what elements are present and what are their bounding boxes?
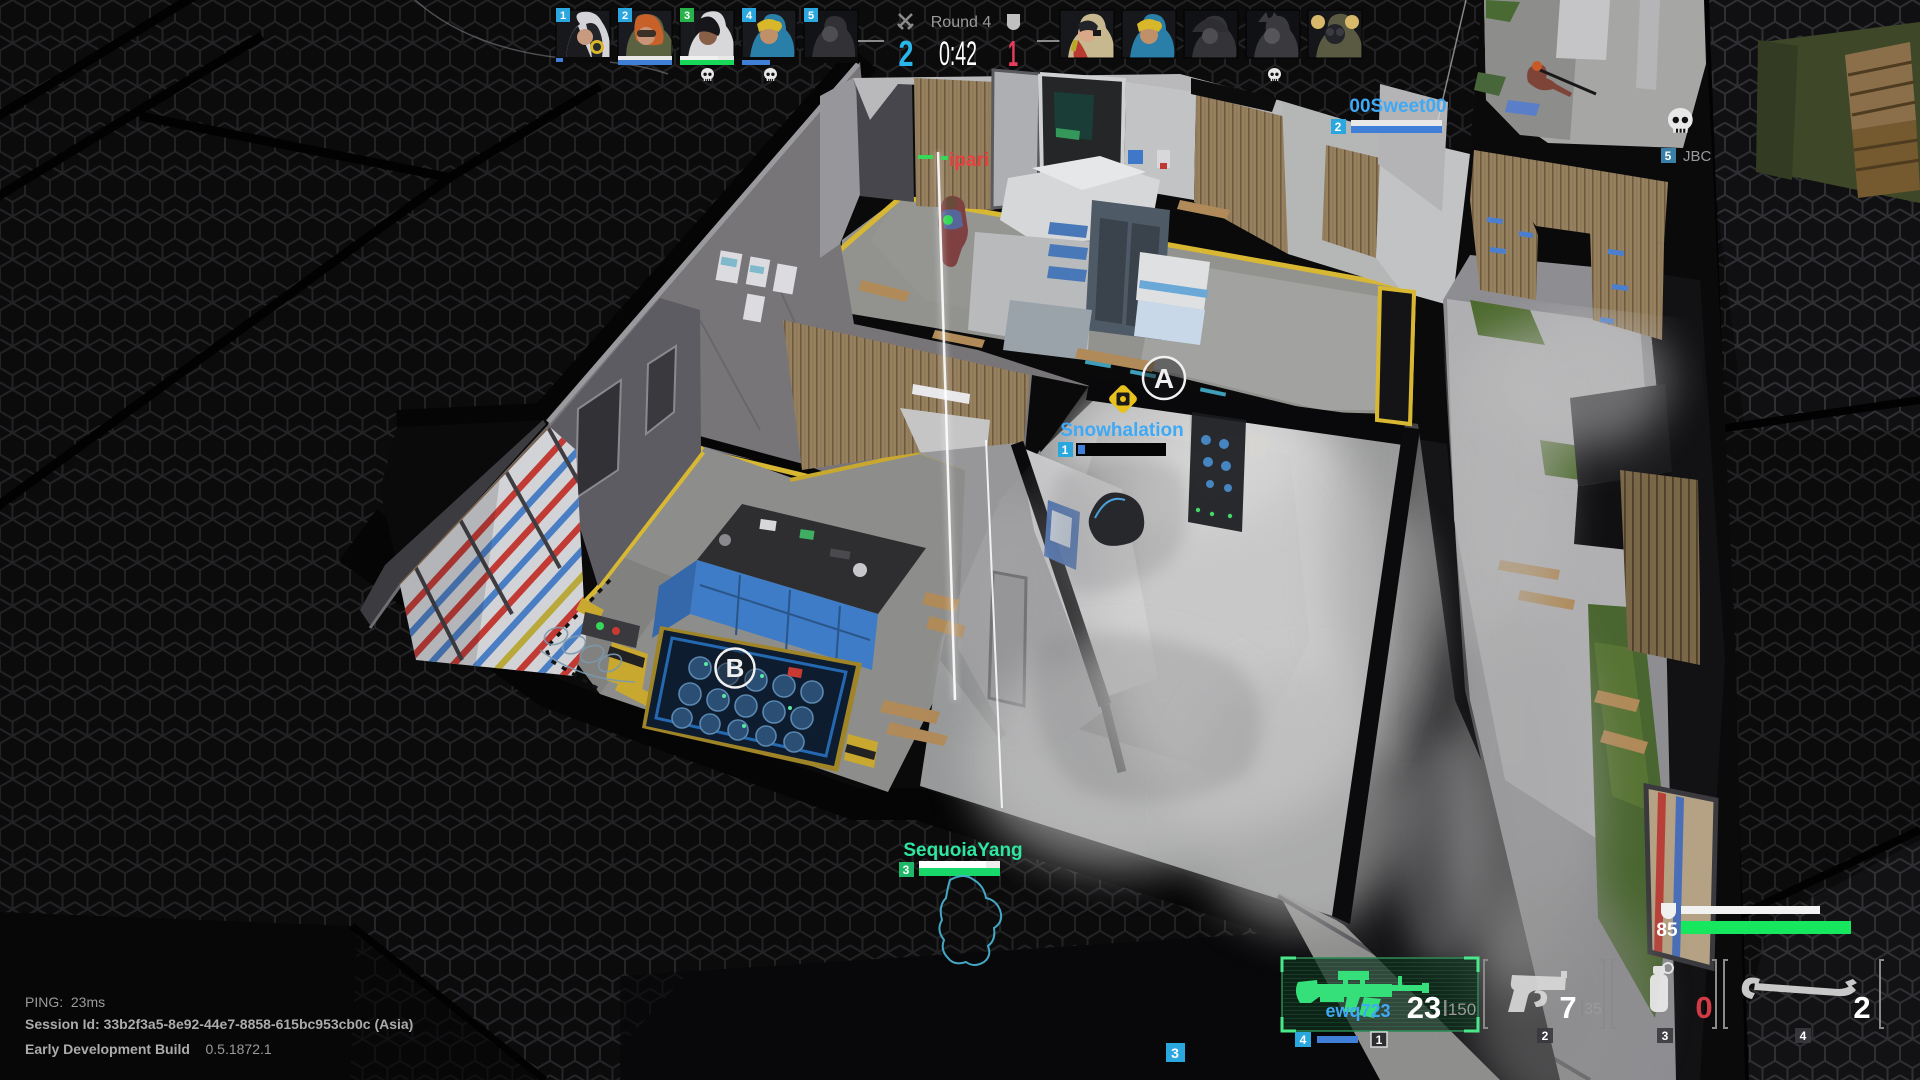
svg-text:3: 3 — [1662, 1029, 1669, 1043]
svg-text:7: 7 — [1559, 990, 1576, 1025]
svg-text:4: 4 — [1800, 1029, 1807, 1043]
svg-text:Session Id: 33b2f3a5-8e92-44e7: Session Id: 33b2f3a5-8e92-44e7-8858-615b… — [25, 1016, 413, 1032]
svg-text:2: 2 — [899, 33, 914, 74]
svg-text:1: 1 — [560, 10, 566, 22]
svg-text:0: 0 — [1695, 990, 1712, 1025]
svg-text:5: 5 — [1665, 149, 1672, 163]
svg-text:1: 1 — [1062, 443, 1069, 457]
svg-text:SequoiaYang: SequoiaYang — [903, 840, 1022, 861]
svg-text:1: 1 — [1008, 33, 1018, 74]
svg-text:150: 150 — [1448, 1000, 1476, 1019]
svg-text:ipari: ipari — [949, 150, 989, 171]
svg-text:4: 4 — [746, 10, 753, 22]
svg-text:Early Development Build 0.5: Early Development Build 0.5.1872.1 — [25, 1041, 272, 1057]
svg-text:5: 5 — [808, 10, 814, 22]
svg-text:PING: 23ms: PING: 23ms — [25, 994, 105, 1010]
svg-text:23: 23 — [1407, 990, 1441, 1025]
svg-text:2: 2 — [1542, 1029, 1549, 1043]
svg-text:00Sweet00: 00Sweet00 — [1349, 96, 1446, 117]
svg-text:0:42: 0:42 — [939, 35, 977, 73]
svg-text:3: 3 — [684, 10, 690, 22]
svg-text:Snowhalation: Snowhalation — [1060, 420, 1184, 441]
svg-text:3: 3 — [903, 863, 910, 877]
svg-text:2: 2 — [1335, 120, 1342, 134]
svg-text:1: 1 — [1376, 1033, 1383, 1047]
svg-text:Round 4: Round 4 — [931, 14, 992, 31]
svg-text:2: 2 — [1853, 990, 1870, 1025]
svg-text:ewq723: ewq723 — [1325, 1001, 1390, 1021]
svg-text:A: A — [1154, 363, 1174, 394]
svg-text:85: 85 — [1656, 920, 1678, 941]
svg-text:2: 2 — [622, 10, 628, 22]
svg-text:B: B — [726, 653, 745, 683]
svg-text:4: 4 — [1300, 1033, 1307, 1047]
svg-text:JBC: JBC — [1683, 148, 1712, 165]
svg-text:3: 3 — [1171, 1045, 1179, 1061]
svg-text:35: 35 — [1584, 1001, 1602, 1018]
